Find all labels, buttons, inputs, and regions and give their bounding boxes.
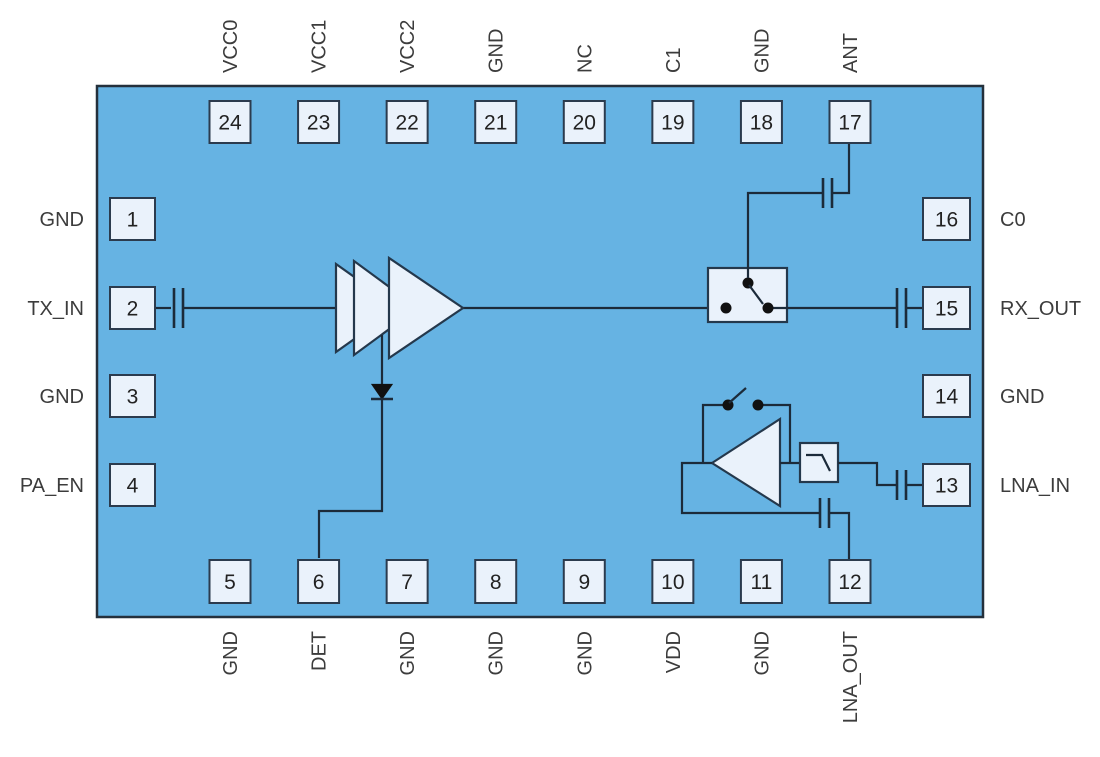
pad-label-GND: GND bbox=[40, 386, 84, 408]
pin-number-3: 3 bbox=[127, 386, 139, 409]
pin-number-11: 11 bbox=[751, 571, 773, 594]
pinout-diagram: 242322212019181756789101112123416151413 … bbox=[0, 0, 1100, 757]
pinout-diagram-canvas: 242322212019181756789101112123416151413 … bbox=[0, 0, 1100, 757]
pin-number-1: 1 bbox=[127, 209, 139, 232]
pad-label-VCC0: VCC0 bbox=[220, 20, 242, 73]
pad-label-NC: NC bbox=[574, 44, 596, 73]
pin-number-16: 16 bbox=[935, 209, 958, 232]
pin-number-17: 17 bbox=[838, 112, 861, 135]
pad-label-C1: C1 bbox=[663, 47, 685, 73]
pad-label-VDD: VDD bbox=[663, 631, 685, 673]
pad-label-RX_OUT: RX_OUT bbox=[1000, 298, 1081, 320]
pad-label-GND: GND bbox=[220, 631, 242, 675]
pin-number-2: 2 bbox=[127, 298, 139, 321]
pad-label-GND: GND bbox=[751, 631, 773, 675]
pad-label-VCC1: VCC1 bbox=[309, 20, 331, 73]
pin-number-4: 4 bbox=[127, 475, 139, 498]
pin-number-23: 23 bbox=[307, 112, 330, 135]
pad-label-PA_EN: PA_EN bbox=[20, 475, 84, 497]
pin-number-21: 21 bbox=[484, 112, 507, 135]
pin-number-22: 22 bbox=[395, 112, 418, 135]
pin-number-7: 7 bbox=[401, 571, 413, 594]
pin-number-6: 6 bbox=[313, 571, 325, 594]
pad-label-GND: GND bbox=[397, 631, 419, 675]
pin-number-15: 15 bbox=[935, 298, 958, 321]
pad-label-LNA_IN: LNA_IN bbox=[1000, 475, 1070, 497]
pad-label-GND: GND bbox=[486, 29, 508, 73]
pad-label-VCC2: VCC2 bbox=[397, 20, 419, 73]
pad-label-DET: DET bbox=[309, 631, 331, 671]
low-pass-filter-icon bbox=[800, 443, 838, 482]
pad-label-ANT: ANT bbox=[840, 33, 862, 73]
pin-number-12: 12 bbox=[838, 571, 861, 594]
pad-label-GND: GND bbox=[574, 631, 596, 675]
pad-label-TX_IN: TX_IN bbox=[27, 298, 84, 320]
pad-label-GND: GND bbox=[40, 209, 84, 231]
pin-number-18: 18 bbox=[750, 112, 773, 135]
pin-number-10: 10 bbox=[661, 571, 684, 594]
pad-label-GND: GND bbox=[751, 29, 773, 73]
pin-number-20: 20 bbox=[573, 112, 596, 135]
pin-number-9: 9 bbox=[578, 571, 590, 594]
pad-label-C0: C0 bbox=[1000, 209, 1026, 231]
pad-label-GND: GND bbox=[1000, 386, 1044, 408]
pin-number-19: 19 bbox=[661, 112, 684, 135]
pin-number-8: 8 bbox=[490, 571, 502, 594]
pin-number-13: 13 bbox=[935, 475, 958, 498]
pin-number-14: 14 bbox=[935, 386, 959, 409]
pin-number-24: 24 bbox=[218, 112, 242, 135]
pin-number-5: 5 bbox=[224, 571, 236, 594]
pad-label-GND: GND bbox=[486, 631, 508, 675]
pad-label-LNA_OUT: LNA_OUT bbox=[840, 631, 862, 723]
